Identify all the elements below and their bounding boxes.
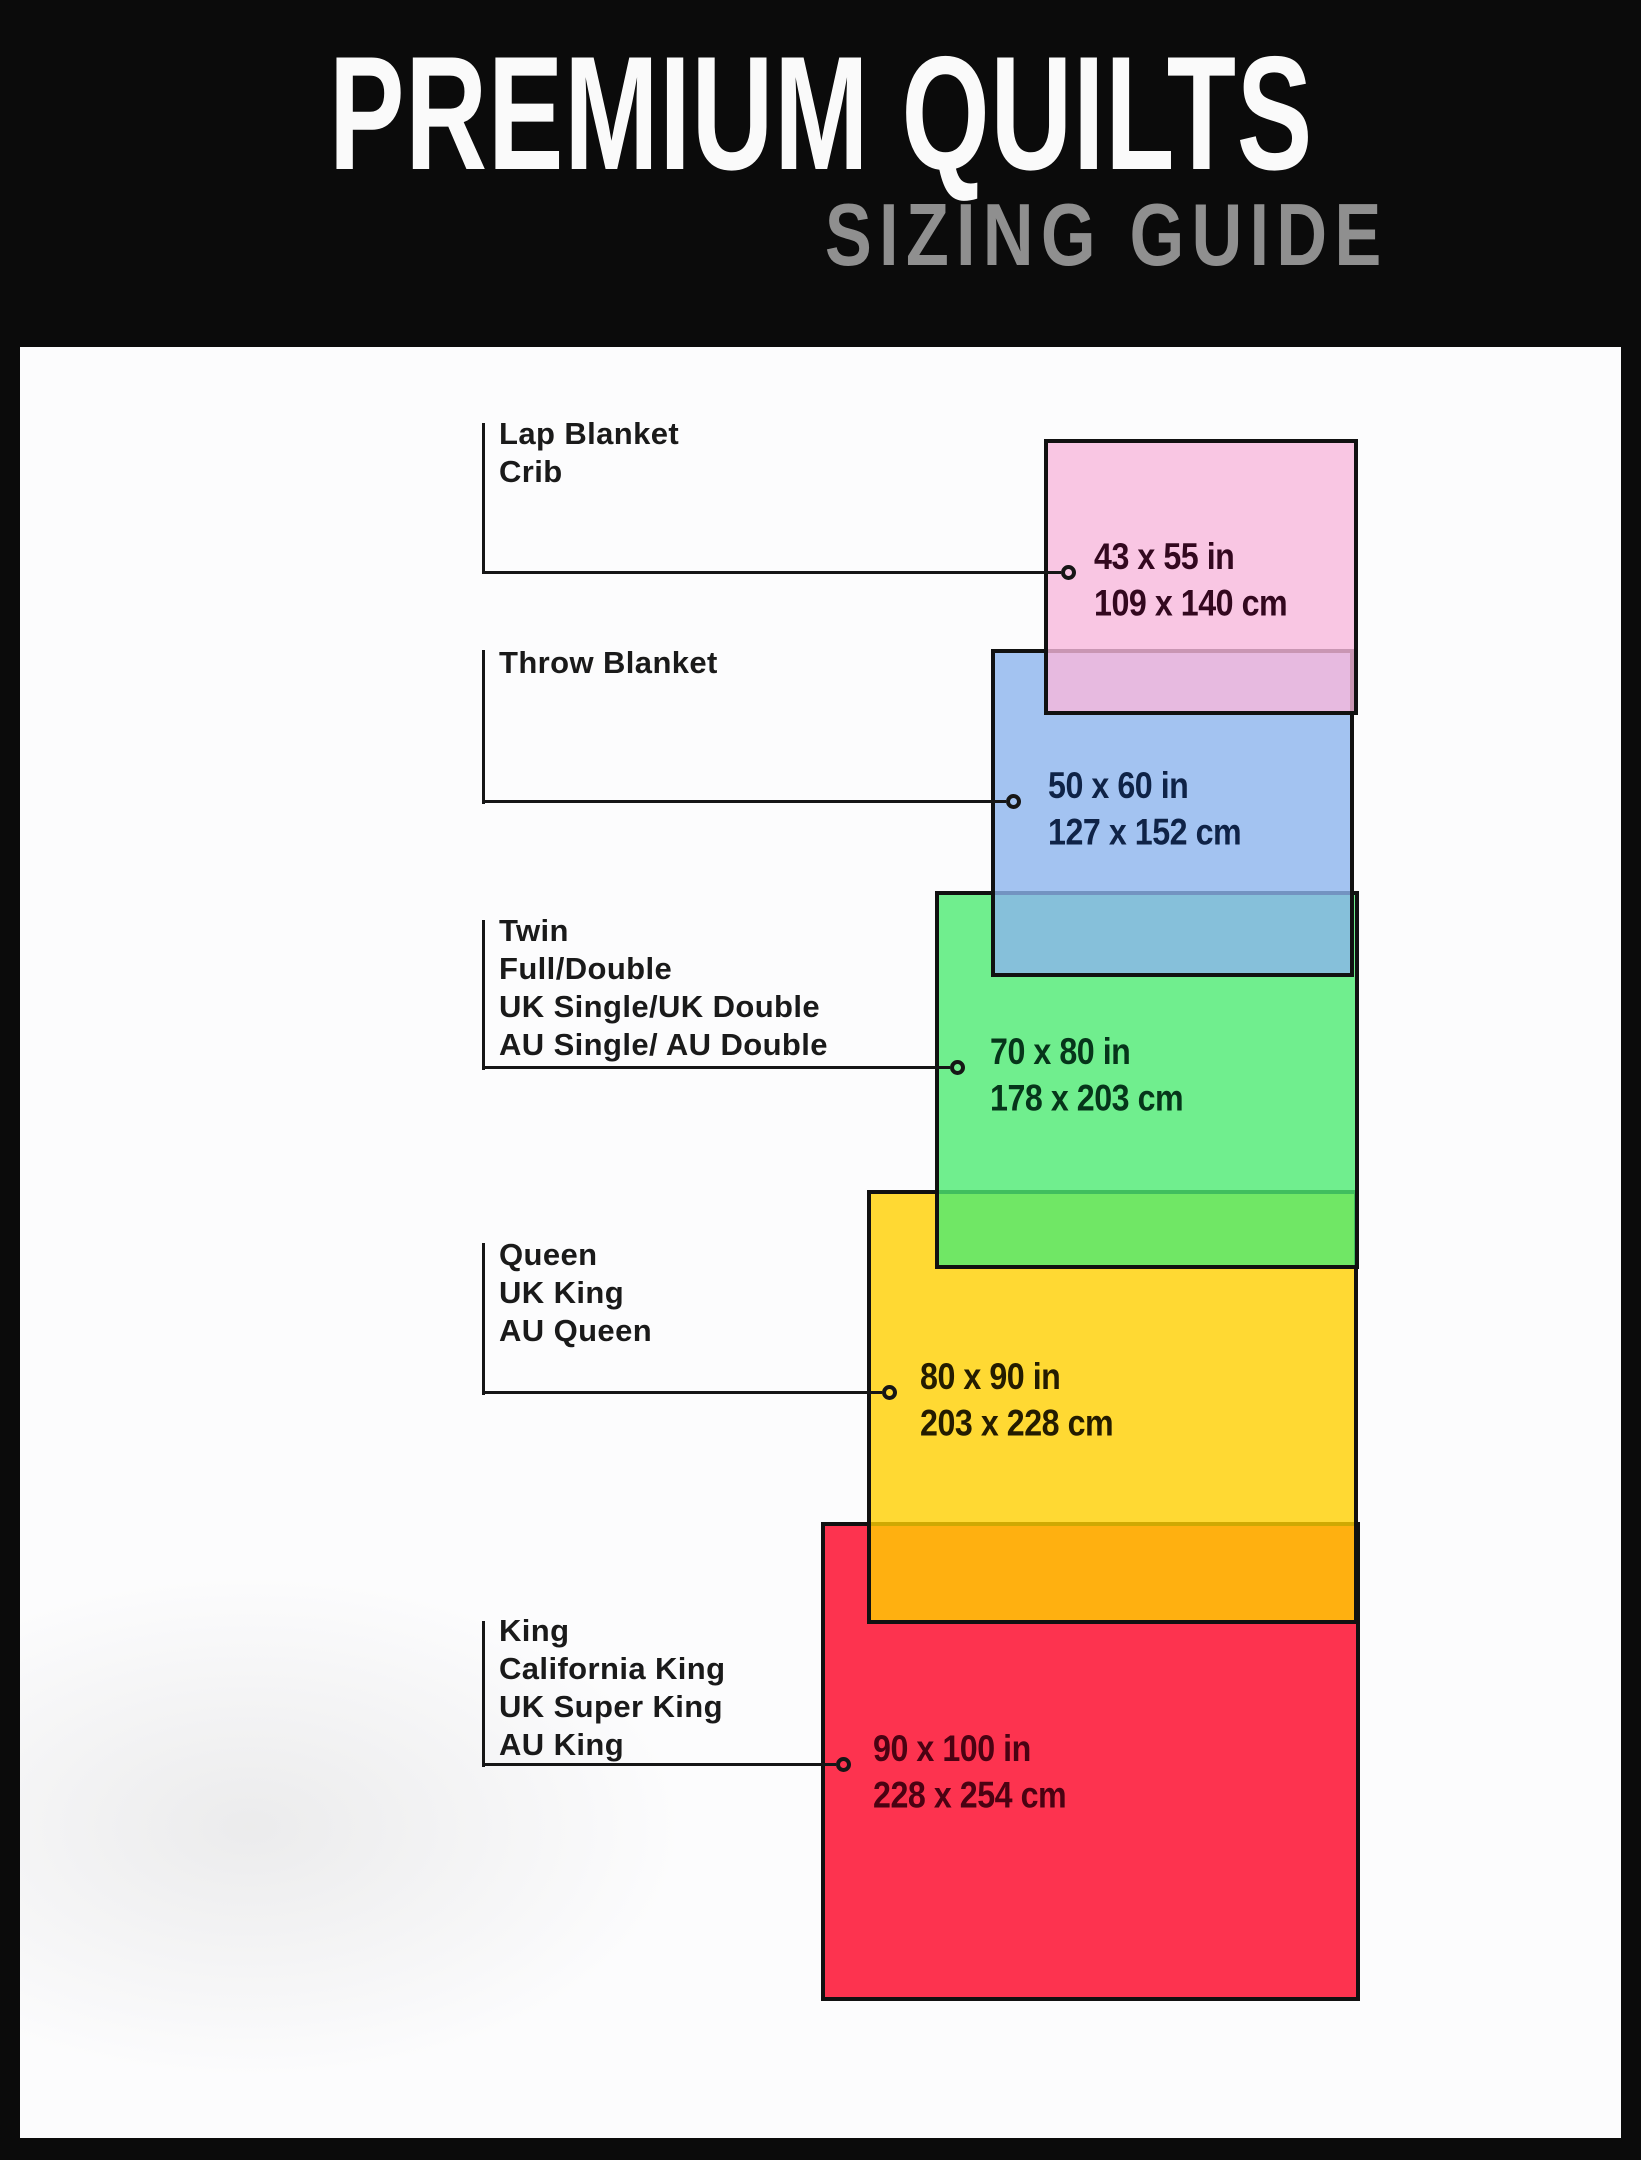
size-inches: 43 x 55 in (1094, 534, 1287, 581)
connector-line-queen (482, 1391, 882, 1394)
leader-dot-king (836, 1757, 851, 1772)
size-inches: 80 x 90 in (920, 1354, 1113, 1401)
label-lap-blanket-crib: Lap Blanket Crib (499, 415, 679, 491)
size-text-queen: 80 x 90 in 203 x 228 cm (920, 1354, 1113, 1447)
bracket-vline-throw (482, 650, 485, 804)
size-inches: 90 x 100 in (873, 1726, 1066, 1773)
bracket-vline-lap (482, 423, 485, 574)
page-title: PREMIUM QUILTS (328, 33, 1312, 195)
bracket-vline-king (482, 1621, 485, 1767)
page-subtitle: SIZING GUIDE (824, 191, 1388, 279)
label-throw-blanket: Throw Blanket (499, 644, 718, 682)
label-twin-full-double: Twin Full/Double UK Single/UK Double AU … (499, 912, 828, 1064)
size-cm: 178 x 203 cm (990, 1076, 1183, 1123)
connector-line-twin (482, 1066, 950, 1069)
size-text-king: 90 x 100 in 228 x 254 cm (873, 1726, 1066, 1819)
size-text-twin: 70 x 80 in 178 x 203 cm (990, 1029, 1183, 1122)
size-cm: 228 x 254 cm (873, 1773, 1066, 1820)
size-cm: 203 x 228 cm (920, 1401, 1113, 1448)
header: PREMIUM QUILTS SIZING GUIDE (0, 0, 1641, 347)
label-queen-uk-king: Queen UK King AU Queen (499, 1236, 652, 1350)
bracket-vline-twin (482, 920, 485, 1070)
connector-line-throw (482, 800, 1006, 803)
size-text-throw-blanket: 50 x 60 in 127 x 152 cm (1048, 763, 1241, 856)
title-row: PREMIUM QUILTS (253, 33, 1388, 195)
leader-dot-twin (950, 1060, 965, 1075)
size-inches: 50 x 60 in (1048, 763, 1241, 810)
sizing-guide-infographic: PREMIUM QUILTS SIZING GUIDE 43 x 55 in 1… (0, 0, 1641, 2160)
leader-dot-lap (1061, 565, 1076, 580)
subtitle-row: SIZING GUIDE (253, 191, 1388, 279)
size-text-lap-blanket: 43 x 55 in 109 x 140 cm (1094, 534, 1287, 627)
size-cm: 109 x 140 cm (1094, 581, 1287, 628)
leader-dot-throw (1006, 794, 1021, 809)
connector-line-king (482, 1763, 836, 1766)
leader-dot-queen (882, 1385, 897, 1400)
connector-line-lap (482, 571, 1061, 574)
size-inches: 70 x 80 in (990, 1029, 1183, 1076)
label-king-california: King California King UK Super King AU Ki… (499, 1612, 725, 1764)
size-cm: 127 x 152 cm (1048, 810, 1241, 857)
bracket-vline-queen (482, 1243, 485, 1395)
